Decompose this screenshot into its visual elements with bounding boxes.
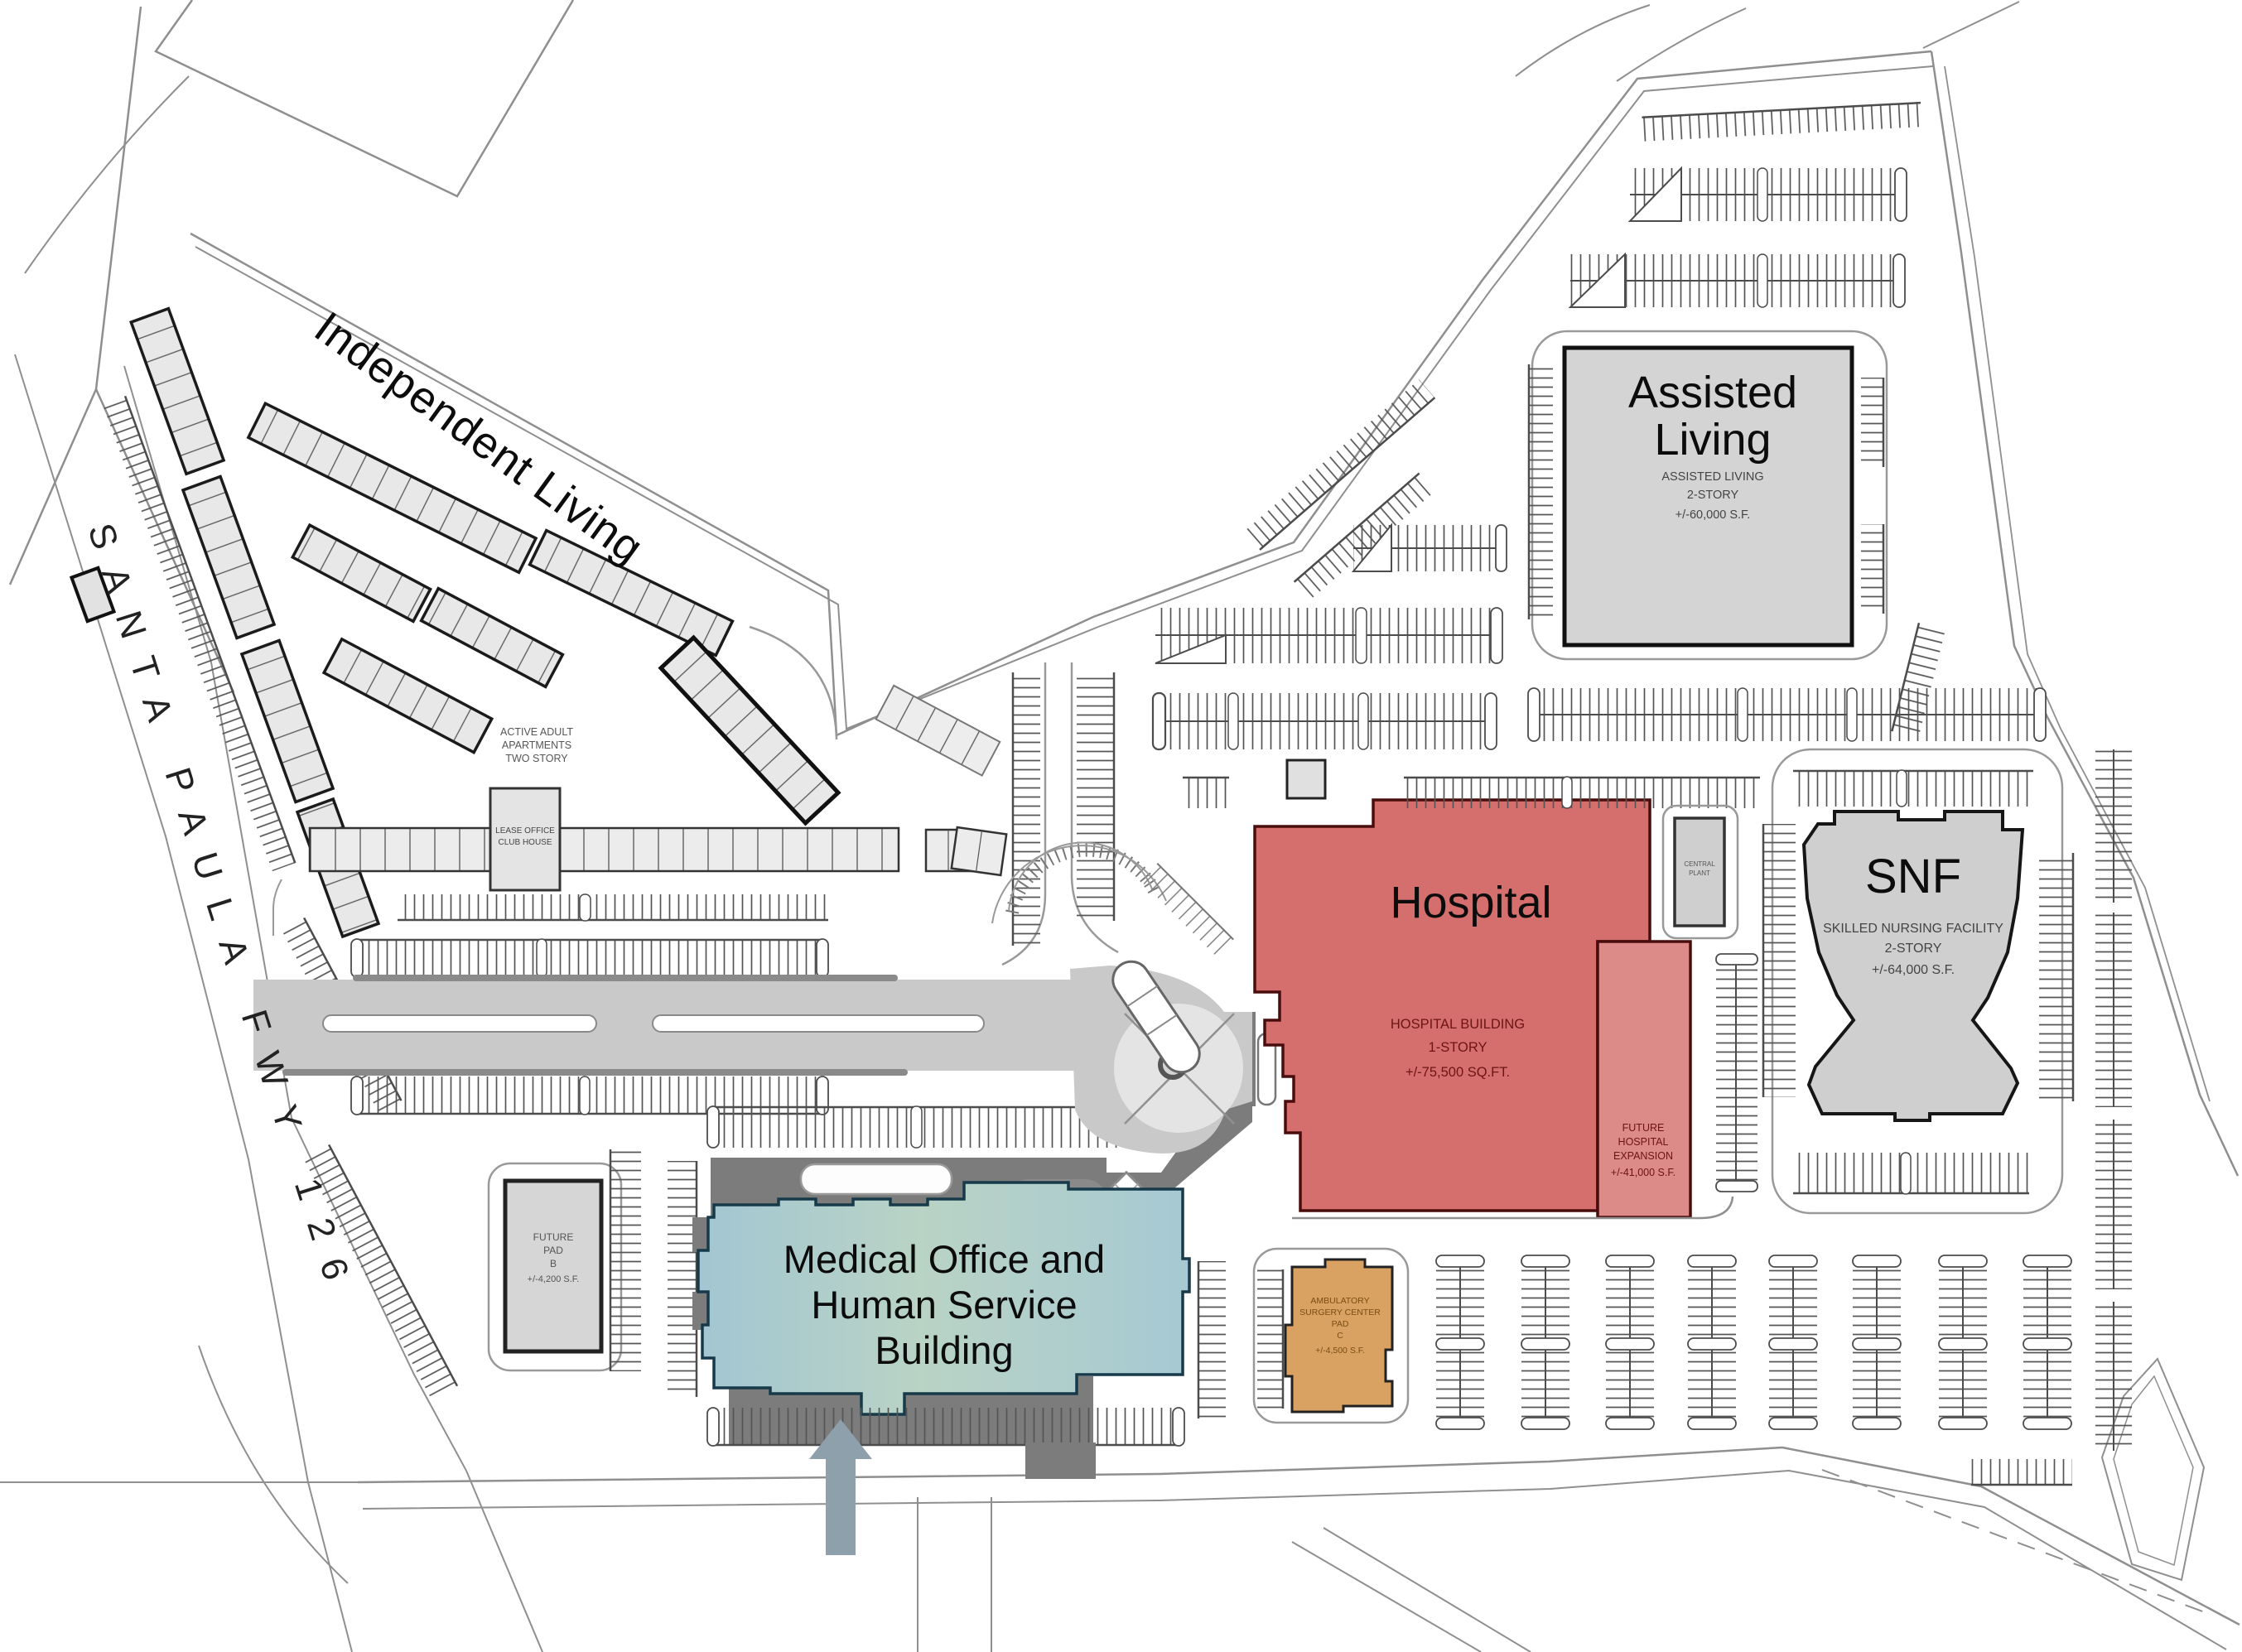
svg-text:Building: Building [875, 1328, 1013, 1372]
svg-text:SURGERY CENTER: SURGERY CENTER [1299, 1308, 1381, 1317]
svg-text:C: C [1337, 1331, 1343, 1341]
svg-text:ACTIVE ADULT: ACTIVE ADULT [500, 726, 573, 738]
svg-text:HOSPITAL BUILDING: HOSPITAL BUILDING [1391, 1017, 1525, 1032]
svg-text:HOSPITAL: HOSPITAL [1618, 1136, 1669, 1148]
svg-text:+/-75,500 SQ.FT.: +/-75,500 SQ.FT. [1405, 1065, 1510, 1080]
svg-text:PAD: PAD [543, 1245, 563, 1256]
svg-text:TWO STORY: TWO STORY [505, 753, 568, 764]
svg-text:Hospital: Hospital [1390, 878, 1551, 927]
svg-text:LEASE OFFICE: LEASE OFFICE [495, 826, 555, 836]
svg-text:SNF: SNF [1865, 850, 1961, 903]
svg-text:+/-60,000 S.F.: +/-60,000 S.F. [1675, 508, 1751, 522]
svg-text:AMBULATORY: AMBULATORY [1310, 1296, 1369, 1306]
svg-text:FUTURE: FUTURE [1622, 1122, 1665, 1134]
svg-text:B: B [550, 1258, 557, 1269]
svg-text:2-STORY: 2-STORY [1885, 942, 1942, 956]
svg-text:APARTMENTS: APARTMENTS [502, 739, 571, 751]
svg-text:PLANT: PLANT [1689, 869, 1710, 877]
svg-text:1-STORY: 1-STORY [1429, 1040, 1487, 1055]
svg-text:CENTRAL: CENTRAL [1684, 860, 1715, 868]
svg-text:PAD: PAD [1332, 1319, 1349, 1329]
svg-text:+/-41,000 S.F.: +/-41,000 S.F. [1611, 1167, 1675, 1178]
svg-text:EXPANSION: EXPANSION [1613, 1150, 1673, 1162]
svg-text:+/-4,500 S.F.: +/-4,500 S.F. [1315, 1346, 1365, 1356]
svg-text:Living: Living [1654, 415, 1771, 465]
svg-text:2-STORY: 2-STORY [1687, 489, 1739, 502]
svg-text:Medical Office and: Medical Office and [783, 1237, 1105, 1281]
svg-text:Assisted: Assisted [1628, 368, 1797, 417]
svg-text:+/-64,000 S.F.: +/-64,000 S.F. [1872, 963, 1955, 977]
svg-text:SKILLED NURSING FACILITY: SKILLED NURSING FACILITY [1823, 922, 2003, 936]
svg-text:+/-4,200 S.F.: +/-4,200 S.F. [528, 1274, 580, 1284]
svg-text:FUTURE: FUTURE [533, 1231, 574, 1243]
svg-text:Human Service: Human Service [811, 1283, 1077, 1327]
svg-text:CLUB HOUSE: CLUB HOUSE [498, 838, 552, 847]
svg-text:ASSISTED LIVING: ASSISTED LIVING [1661, 470, 1763, 484]
